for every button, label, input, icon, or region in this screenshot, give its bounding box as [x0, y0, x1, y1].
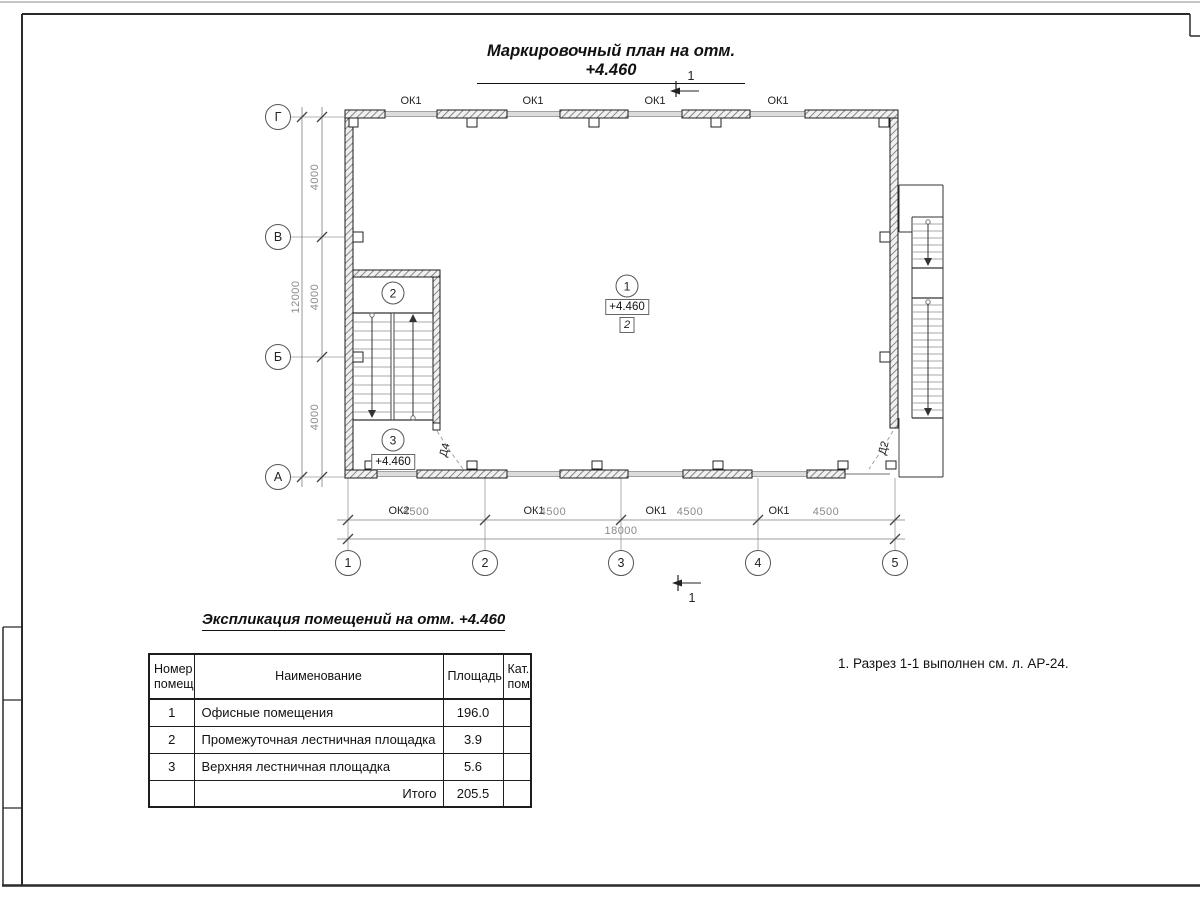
axis-bubble-3: 3	[608, 550, 634, 576]
room-name: Промежуточная лестничная площадка	[194, 726, 443, 753]
dim-4500: 4500	[677, 506, 703, 518]
table-row: 1 Офисные помещения 196.0	[149, 699, 531, 726]
room-name: Верхняя лестничная площадка	[194, 753, 443, 780]
room-number: 2	[149, 726, 194, 753]
dim-4000: 4000	[309, 404, 321, 430]
note-text: 1. Разрез 1-1 выполнен см. л. АР-24.	[838, 656, 1069, 671]
axis-bubble-g: Г	[265, 104, 291, 130]
window-label-ok1: ОК1	[768, 505, 789, 517]
total-area: 205.5	[443, 780, 503, 807]
floor-type-mark: 2	[620, 317, 635, 333]
room-area: 196.0	[443, 699, 503, 726]
dim-4000: 4000	[309, 284, 321, 310]
axis-bubble-1: 1	[335, 550, 361, 576]
window-openings	[377, 112, 807, 477]
schedule-table: Номер помещ. Наименование Площадь Кат. п…	[148, 653, 532, 808]
room-area: 5.6	[443, 753, 503, 780]
room-bubble-2: 2	[382, 282, 405, 305]
room-number: 1	[149, 699, 194, 726]
total-label: Итого	[194, 780, 443, 807]
col-header-cat: Кат. пом.	[503, 654, 531, 699]
room-cat	[503, 726, 531, 753]
col-header-num: Номер помещ.	[149, 654, 194, 699]
room-number: 3	[149, 753, 194, 780]
window-label-ok1: ОК1	[767, 95, 788, 107]
schedule-title: Экспликация помещений на отм. +4.460	[202, 611, 505, 631]
dimension-ticks	[297, 112, 900, 544]
dim-12000: 12000	[290, 280, 302, 313]
total-cat-cell	[503, 780, 531, 807]
exterior-stair	[899, 185, 943, 477]
room-bubble-3: 3	[382, 429, 405, 452]
axis-bubble-4: 4	[745, 550, 771, 576]
total-empty-cell	[149, 780, 194, 807]
interior-stair	[353, 313, 433, 420]
room-cat	[503, 699, 531, 726]
table-row: 2 Промежуточная лестничная площадка 3.9	[149, 726, 531, 753]
dim-4500: 4500	[540, 506, 566, 518]
door-swings	[437, 431, 893, 469]
dim-4000: 4000	[309, 164, 321, 190]
drawing-sheet: Маркировочный план на отм. +4.460 ОК1 ОК…	[0, 0, 1200, 900]
table-row: 3 Верхняя лестничная площадка 5.6	[149, 753, 531, 780]
axis-bubble-5: 5	[882, 550, 908, 576]
axis-bubble-2: 2	[472, 550, 498, 576]
room-bubble-1: 1	[616, 275, 639, 298]
plan-title: Маркировочный план на отм. +4.460	[477, 42, 745, 84]
dim-4500: 4500	[813, 506, 839, 518]
window-label-ok1: ОК1	[645, 505, 666, 517]
axis-bubble-a: А	[265, 464, 291, 490]
col-header-area: Площадь	[443, 654, 503, 699]
elevation-label: +4.460	[371, 454, 415, 470]
schedule-header-row: Номер помещ. Наименование Площадь Кат. п…	[149, 654, 531, 699]
window-label-ok1: ОК1	[400, 95, 421, 107]
window-label-ok1: ОК1	[522, 95, 543, 107]
section-number-top: 1	[688, 69, 695, 83]
axis-lines	[291, 117, 895, 550]
axis-bubble-v: В	[265, 224, 291, 250]
schedule-total-row: Итого 205.5	[149, 780, 531, 807]
dim-4500: 4500	[403, 506, 429, 518]
axis-bubble-b: Б	[265, 344, 291, 370]
elevation-label: +4.460	[605, 299, 649, 315]
room-name: Офисные помещения	[194, 699, 443, 726]
col-header-name: Наименование	[194, 654, 443, 699]
section-number-bottom: 1	[689, 591, 696, 605]
room-cat	[503, 753, 531, 780]
window-label-ok1: ОК1	[644, 95, 665, 107]
dim-18000: 18000	[604, 525, 637, 537]
room-area: 3.9	[443, 726, 503, 753]
